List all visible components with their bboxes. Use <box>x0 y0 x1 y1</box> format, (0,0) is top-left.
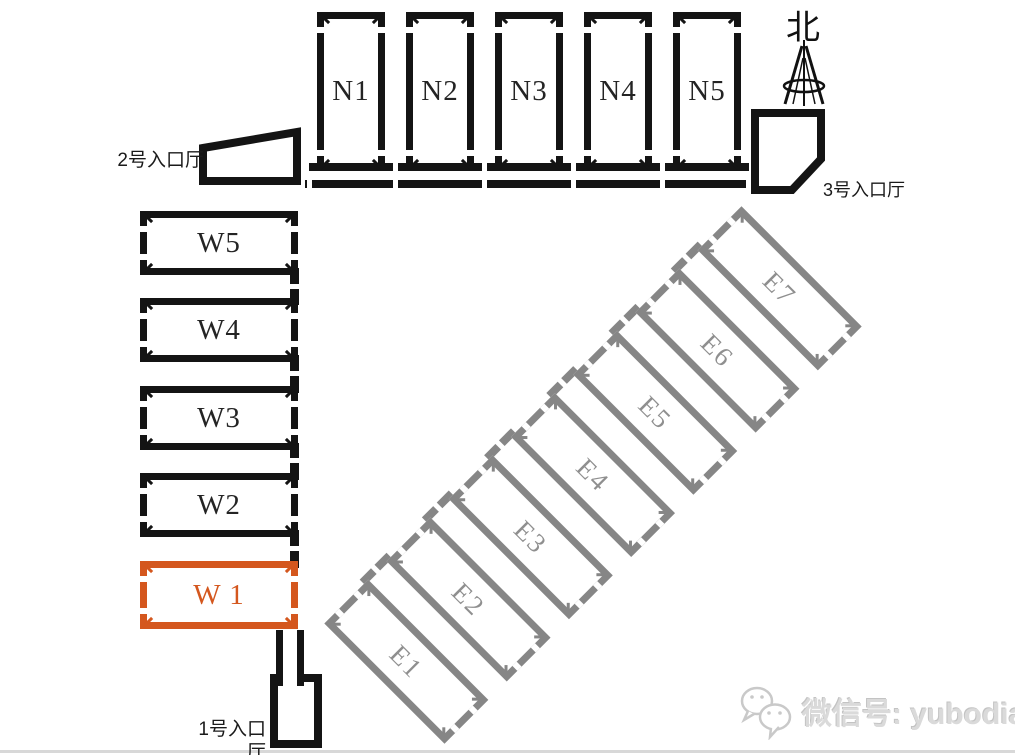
hall-label: E6 <box>696 329 739 372</box>
door-notch <box>442 727 445 740</box>
wall-gap <box>378 27 385 33</box>
wall-gap <box>761 413 770 422</box>
door-notch <box>691 478 694 491</box>
entrance-hall-1-label: 1号入口厅 <box>180 719 266 755</box>
north-compass-icon <box>776 38 832 108</box>
door-notch <box>845 324 858 327</box>
door-notch <box>472 698 485 701</box>
door-notch <box>142 474 153 485</box>
floor-plan: N1 N2 N3 N4 N5 2号入口厅 北 3号入口厅 W5 <box>0 0 1015 755</box>
wall-gap <box>637 537 646 546</box>
door-notch <box>285 387 296 398</box>
door-notch <box>505 665 508 678</box>
wall-gap <box>467 27 474 33</box>
wall-gap <box>317 27 324 33</box>
door-notch <box>639 159 650 170</box>
wall-gap <box>140 313 147 319</box>
wall-gap <box>140 254 147 260</box>
door-notch <box>328 623 341 626</box>
hall-label: N4 <box>599 77 636 106</box>
wall-gap <box>556 150 563 156</box>
door-notch <box>142 350 153 361</box>
wall-gap <box>664 279 673 288</box>
door-notch <box>639 312 652 315</box>
wall-gap <box>708 235 717 244</box>
wall-gap <box>467 150 474 156</box>
wall-gap <box>291 401 298 407</box>
hall-label: E4 <box>571 453 614 496</box>
hall-w1-highlighted: W 1 <box>140 561 298 629</box>
hall-w4: W4 <box>140 298 298 362</box>
wall-slit <box>288 458 301 463</box>
hall-n2: N2 <box>406 12 474 171</box>
wall-gap <box>140 226 147 232</box>
corridor-slit <box>393 178 398 190</box>
hall-label: N3 <box>510 77 547 106</box>
door-notch <box>285 562 296 573</box>
door-notch <box>390 560 403 563</box>
hall-label: W3 <box>197 404 241 433</box>
door-notch <box>577 374 590 377</box>
wall-gap <box>406 27 413 33</box>
door-notch <box>142 525 153 536</box>
wall-gap <box>450 724 459 733</box>
wall-gap <box>291 488 298 494</box>
wall-gap <box>593 581 602 590</box>
wall-gap <box>512 662 521 671</box>
wall-gap <box>495 27 502 33</box>
wall-gap <box>673 27 680 33</box>
entrance-hall-2-label: 2号入口厅 <box>100 150 204 173</box>
door-notch <box>675 13 686 24</box>
wall-gap <box>397 546 406 555</box>
wall-gap <box>291 254 298 260</box>
hall-label: N5 <box>688 77 725 106</box>
wall-gap <box>734 150 741 156</box>
door-notch <box>142 438 153 449</box>
corridor-slit <box>571 178 576 190</box>
watermark: 微信号: yubodia <box>738 682 1015 740</box>
wall-slit <box>288 284 301 289</box>
entrance-hall-2-shape <box>198 124 310 190</box>
door-notch <box>586 159 597 170</box>
wall-gap <box>416 528 425 537</box>
wall-gap <box>140 488 147 494</box>
hall-label: E1 <box>385 640 428 683</box>
door-notch <box>753 416 756 429</box>
wall-gap <box>780 394 789 403</box>
door-notch <box>728 159 739 170</box>
wall-gap <box>540 404 549 413</box>
hall-label: E7 <box>758 267 801 310</box>
door-notch <box>142 562 153 573</box>
door-notch <box>142 387 153 398</box>
door-notch <box>514 436 527 439</box>
door-notch <box>142 263 153 274</box>
door-notch <box>408 13 419 24</box>
door-notch <box>675 159 686 170</box>
door-notch <box>586 13 597 24</box>
door-notch <box>639 13 650 24</box>
door-notch <box>285 350 296 361</box>
door-notch <box>142 299 153 310</box>
door-notch <box>285 617 296 628</box>
wall-gap <box>406 150 413 156</box>
wall-gap <box>378 150 385 156</box>
wall-gap <box>459 484 468 493</box>
door-notch <box>721 449 734 452</box>
wall-gap <box>291 226 298 232</box>
hall-label: E3 <box>509 516 552 559</box>
door-notch <box>497 13 508 24</box>
door-notch <box>319 159 330 170</box>
door-notch <box>461 13 472 24</box>
hall-label: W5 <box>197 229 241 258</box>
door-notch <box>567 603 570 616</box>
wall-gap <box>317 150 324 156</box>
door-notch <box>452 498 465 501</box>
door-notch <box>816 354 819 367</box>
door-notch <box>285 525 296 536</box>
wall-gap <box>646 298 655 307</box>
door-notch <box>285 438 296 449</box>
hall-w3: W3 <box>140 386 298 450</box>
door-notch <box>367 583 370 596</box>
door-notch <box>285 299 296 310</box>
door-notch <box>372 13 383 24</box>
wall-gap <box>734 27 741 33</box>
door-notch <box>142 617 153 628</box>
hall-label: E2 <box>447 578 490 621</box>
wall-gap <box>335 609 344 618</box>
wall-gap <box>291 429 298 435</box>
door-notch <box>596 573 609 576</box>
wall-gap <box>140 608 147 614</box>
corridor-slit <box>482 178 487 190</box>
wall-gap <box>717 457 726 466</box>
wall-gap <box>495 150 502 156</box>
hall-label: N1 <box>332 77 369 106</box>
door-notch <box>678 272 681 285</box>
wall-gap <box>673 150 680 156</box>
hall-w2: W2 <box>140 473 298 537</box>
hall-label: W 1 <box>193 581 245 610</box>
wall-gap <box>645 27 652 33</box>
wall-gap <box>140 576 147 582</box>
wall-gap <box>291 516 298 522</box>
door-notch <box>408 159 419 170</box>
door-notch <box>461 159 472 170</box>
door-notch <box>492 459 495 472</box>
hall-n4: N4 <box>584 12 652 171</box>
door-notch <box>534 635 547 638</box>
wechat-icon <box>738 682 796 740</box>
hall-n5: N5 <box>673 12 741 171</box>
hall-label: W4 <box>197 316 241 345</box>
door-notch <box>497 159 508 170</box>
door-notch <box>728 13 739 24</box>
wall-gap <box>842 332 851 341</box>
bottom-divider <box>0 750 1015 753</box>
door-notch <box>285 474 296 485</box>
door-notch <box>285 212 296 223</box>
wall-gap <box>140 516 147 522</box>
hall-label: E5 <box>634 391 677 434</box>
door-notch <box>142 212 153 223</box>
wall-gap <box>584 360 593 369</box>
corridor-slit <box>660 178 665 190</box>
door-notch <box>372 159 383 170</box>
hall-w5: W5 <box>140 211 298 275</box>
door-notch <box>616 334 619 347</box>
door-notch <box>430 521 433 534</box>
wall-gap <box>522 422 531 431</box>
wall-gap <box>727 217 736 226</box>
wall-gap <box>140 429 147 435</box>
door-notch <box>741 210 744 223</box>
entrance-hall-3-label: 3号入口厅 <box>823 180 905 202</box>
door-notch <box>550 159 561 170</box>
wall-gap <box>291 341 298 347</box>
wall-gap <box>469 706 478 715</box>
wall-gap <box>584 150 591 156</box>
wall-slit <box>288 371 301 376</box>
door-notch <box>319 13 330 24</box>
hall-n1: N1 <box>317 12 385 171</box>
corridor-slit <box>746 178 751 190</box>
door-notch <box>554 396 557 409</box>
wall-gap <box>699 475 708 484</box>
wall-gap <box>575 599 584 608</box>
wall-gap <box>140 341 147 347</box>
hall-n3: N3 <box>495 12 563 171</box>
watermark-text: 微信号: yubodia <box>802 689 1015 733</box>
wall-gap <box>478 466 487 475</box>
wall-gap <box>556 27 563 33</box>
wall-gap <box>291 313 298 319</box>
door-notch <box>783 387 796 390</box>
hall-label: W2 <box>197 491 241 520</box>
wall-gap <box>655 519 664 528</box>
north-corridor-wall <box>305 180 753 188</box>
wall-gap <box>353 590 362 599</box>
wall-slit <box>288 546 301 551</box>
corridor-slit <box>307 178 312 190</box>
east-halls-block: E7 E6 E5 E4 E3 E2 E1 <box>324 206 861 743</box>
wall-gap <box>584 27 591 33</box>
wall-gap <box>140 401 147 407</box>
wall-gap <box>645 150 652 156</box>
door-notch <box>629 541 632 554</box>
door-notch <box>285 263 296 274</box>
wall-gap <box>602 341 611 350</box>
wall-gap <box>531 643 540 652</box>
wall-gap <box>291 576 298 582</box>
door-notch <box>659 511 672 514</box>
hall-label: N2 <box>421 77 458 106</box>
door-notch <box>550 13 561 24</box>
door-notch <box>701 249 714 252</box>
wall-gap <box>824 351 833 360</box>
entrance-hall-1-neck <box>276 630 304 686</box>
entrance-hall-3-shape <box>750 108 828 196</box>
wall-gap <box>291 608 298 614</box>
